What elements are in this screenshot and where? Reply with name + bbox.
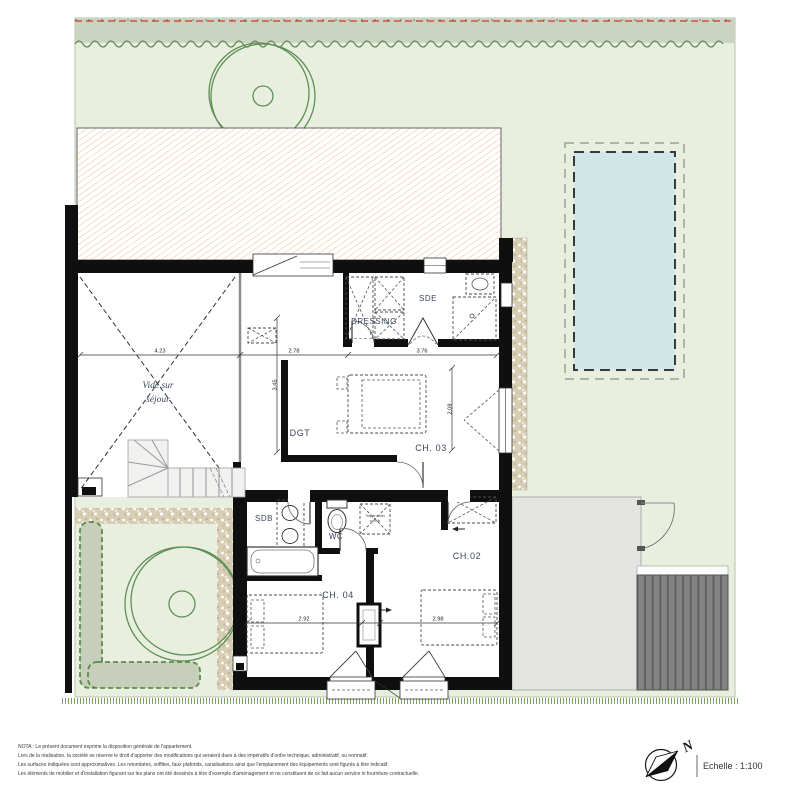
sliding-bay-window (253, 254, 333, 276)
wood-deck (637, 566, 728, 690)
bathtub-icon (247, 547, 318, 576)
nota-line-4: Les éléments de mobilier et d'installati… (18, 771, 419, 777)
dim-dgt: 2.78 (289, 349, 300, 355)
north-arrow-icon: N (646, 738, 697, 781)
gravel-path-garden-top (75, 508, 233, 524)
corner-vent (233, 656, 247, 671)
concrete-terrace (512, 497, 641, 690)
room-label-sdb: SDB (255, 514, 273, 523)
room-label-ch04: CH. 04 (322, 590, 354, 600)
room-label-ch02: CH.02 (453, 551, 482, 561)
dim-sde: 3.76 (417, 349, 428, 355)
dim-ch04: 2.92 (299, 617, 310, 623)
window-top (424, 258, 446, 273)
room-label-ch03: CH. 03 (415, 443, 447, 453)
nota-line-2: Lors de la réalisation, la société se ré… (18, 753, 368, 759)
hedge-bottom (88, 662, 200, 688)
nota-line-1: NOTA : Le présent document exprime la di… (18, 744, 193, 750)
dim-left-height: 3.45 (273, 380, 279, 391)
scale-label: Echelle : 1:100 (703, 761, 763, 771)
window-sde (501, 283, 512, 307)
dim-vide: 4.23 (155, 349, 166, 355)
nota-line-3: Les surfaces indiquées sont approximativ… (18, 762, 389, 768)
roof-hatch (77, 128, 501, 260)
top-hedge-band (75, 18, 735, 43)
room-label-vide-1: Vide sur (142, 381, 174, 391)
dim-ch02: 2.98 (433, 617, 444, 623)
nota-note: NOTA : Le présent document exprime la di… (18, 744, 419, 777)
duct-shaft (358, 604, 380, 646)
floor-plan-page: Trappe accès comble (0, 0, 805, 800)
gravel-path-right (512, 238, 527, 490)
attic-hatch-label-1: Trappe accès (365, 514, 385, 518)
dim-ch03-height: 2.09 (448, 404, 454, 415)
room-label-vide-2: séjour (146, 395, 170, 405)
pool (565, 143, 684, 379)
attic-hatch-label-2: comble (370, 519, 381, 523)
toilet-icon (327, 500, 347, 533)
floor-plan-svg: Trappe accès comble (0, 0, 805, 800)
room-label-wc: WC (329, 532, 343, 541)
room-label-sde: SDE (419, 294, 437, 303)
room-label-dgt: DGT (290, 428, 311, 438)
gravel-path-garden-right (217, 508, 233, 690)
room-label-dressing: DRESSING (351, 317, 397, 326)
north-letter: N (679, 738, 697, 757)
